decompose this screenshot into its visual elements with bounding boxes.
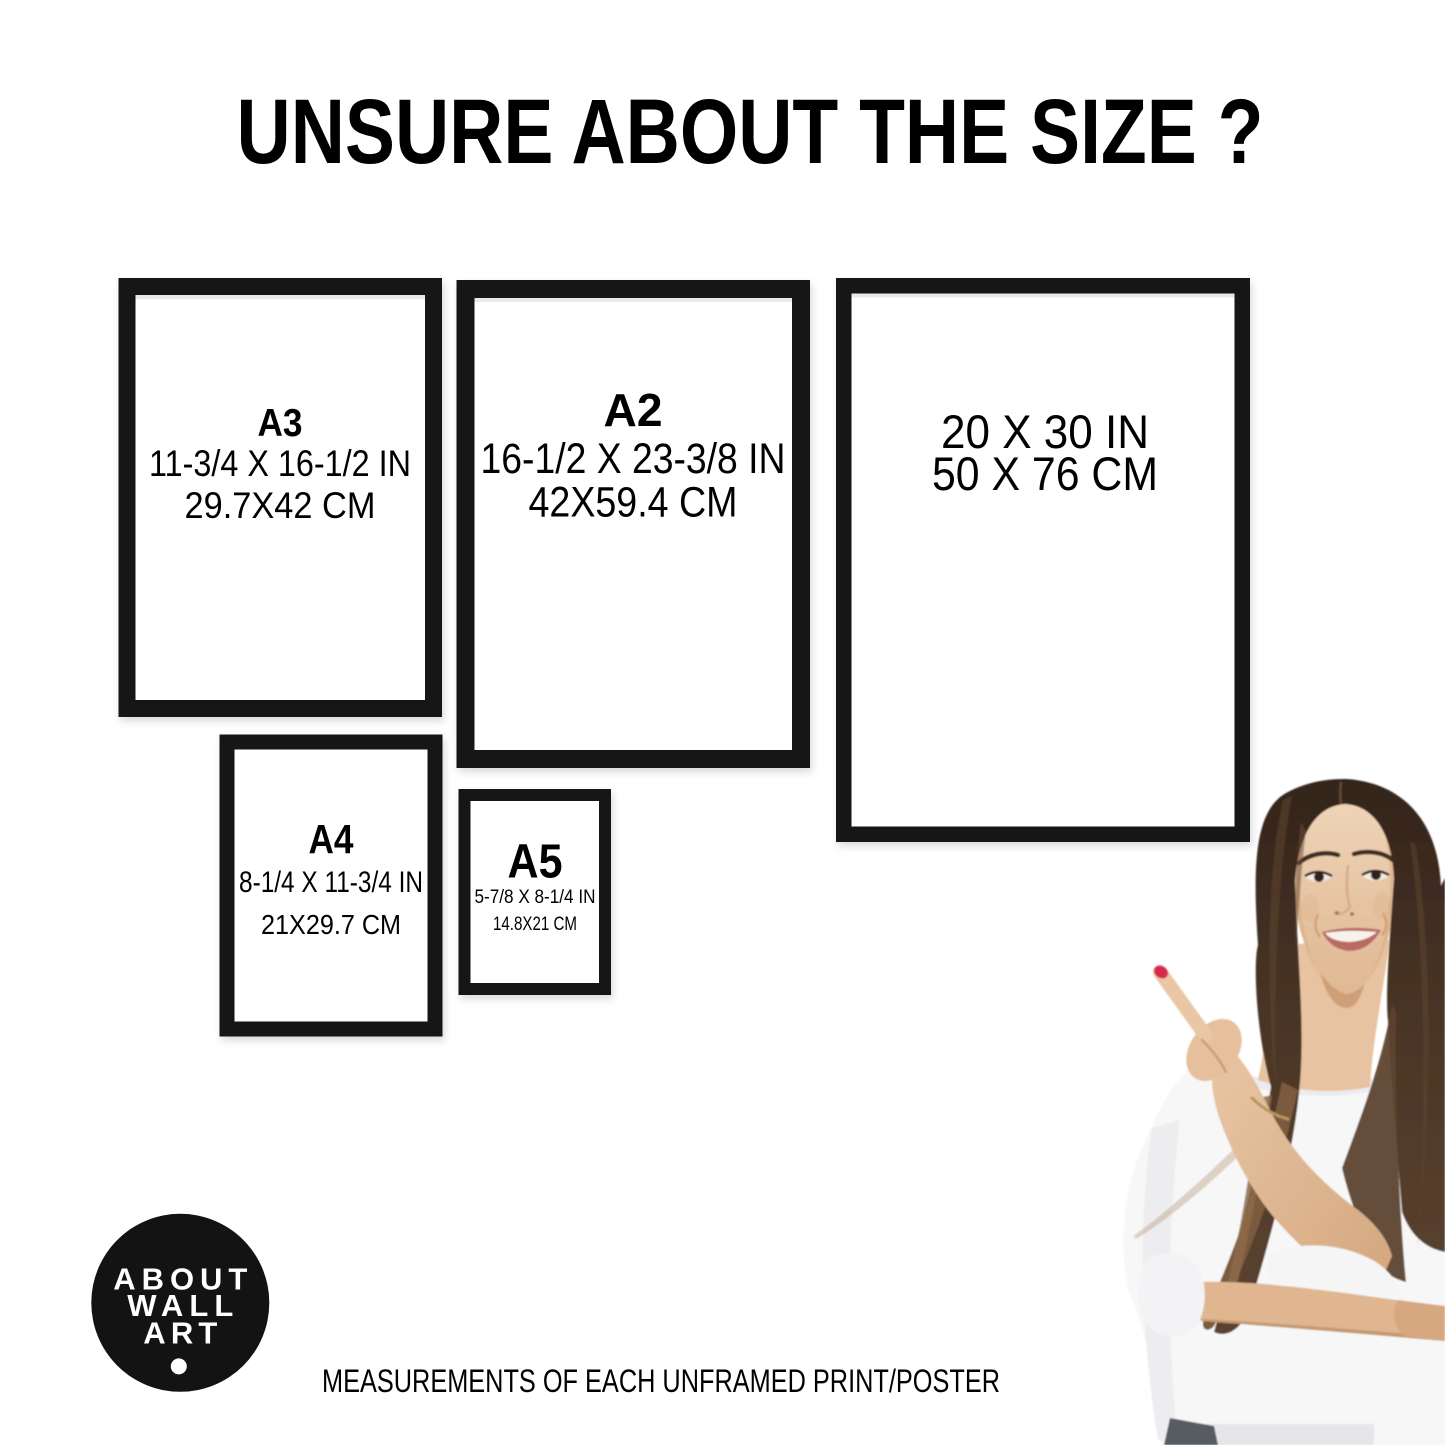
svg-text:16-1/2 X 23-3/8 IN: 16-1/2 X 23-3/8 IN [481,435,786,483]
svg-text:8-1/4 X 11-3/4 IN: 8-1/4 X 11-3/4 IN [239,866,423,899]
svg-text:42X59.4 CM: 42X59.4 CM [529,479,738,527]
svg-text:MEASUREMENTS OF EACH UNFRAMED: MEASUREMENTS OF EACH UNFRAMED PRINT/POST… [322,1363,1000,1399]
svg-text:A3: A3 [258,402,303,445]
svg-text:21X29.7 CM: 21X29.7 CM [261,909,401,940]
svg-text:14.8X21 CM: 14.8X21 CM [493,914,577,935]
svg-text:50 X 76 CM: 50 X 76 CM [932,447,1158,500]
svg-text:ART: ART [143,1316,217,1351]
svg-text:29.7X42 CM: 29.7X42 CM [185,485,376,526]
svg-text:5-7/8 X 8-1/4 IN: 5-7/8 X 8-1/4 IN [475,887,596,908]
svg-text:A2: A2 [604,384,663,436]
svg-text:A5: A5 [508,836,563,889]
svg-text:11-3/4 X 16-1/2 IN: 11-3/4 X 16-1/2 IN [149,443,411,484]
svg-text:UNSURE ABOUT THE SIZE ?: UNSURE ABOUT THE SIZE ? [237,81,1264,183]
svg-text:A4: A4 [309,816,354,862]
